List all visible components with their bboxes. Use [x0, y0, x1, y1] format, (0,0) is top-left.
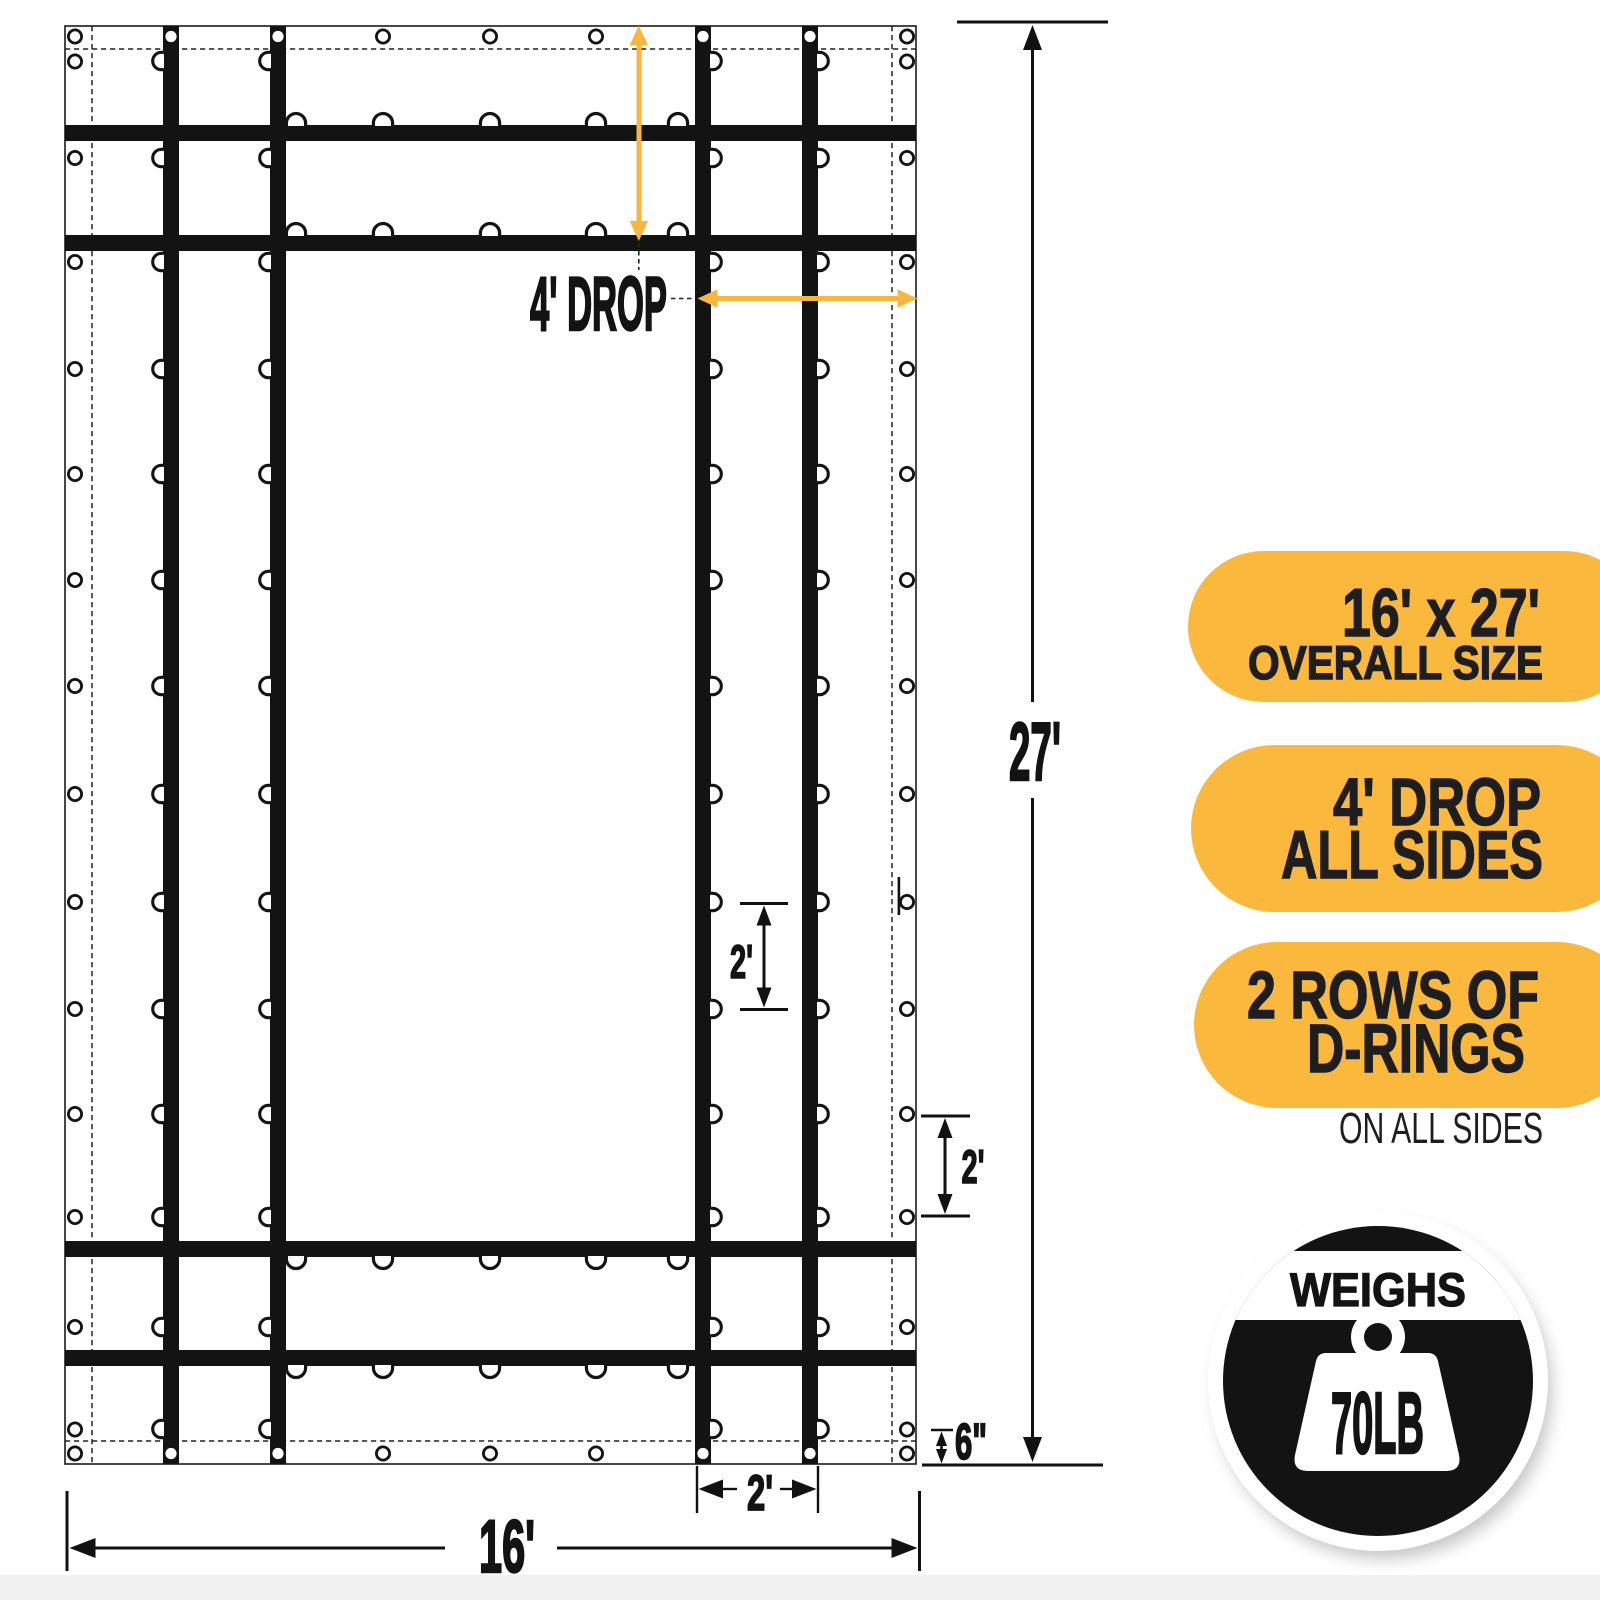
svg-text:2': 2': [962, 1140, 985, 1193]
svg-text:2': 2': [747, 1465, 773, 1521]
svg-text:ON ALL SIDES: ON ALL SIDES: [1339, 1104, 1543, 1153]
svg-text:WEIGHS: WEIGHS: [1290, 1263, 1466, 1316]
svg-text:OVERALL SIZE: OVERALL SIZE: [1248, 636, 1543, 689]
svg-text:27': 27': [1009, 705, 1061, 798]
svg-text:2': 2': [730, 935, 753, 988]
svg-text:4' DROP: 4' DROP: [530, 262, 667, 347]
svg-text:D-RINGS: D-RINGS: [1307, 1010, 1525, 1087]
svg-text:ALL SIDES: ALL SIDES: [1281, 817, 1543, 893]
svg-text:6": 6": [955, 1413, 987, 1470]
svg-text:70LB: 70LB: [1331, 1375, 1424, 1472]
svg-text:16': 16': [479, 1505, 535, 1588]
